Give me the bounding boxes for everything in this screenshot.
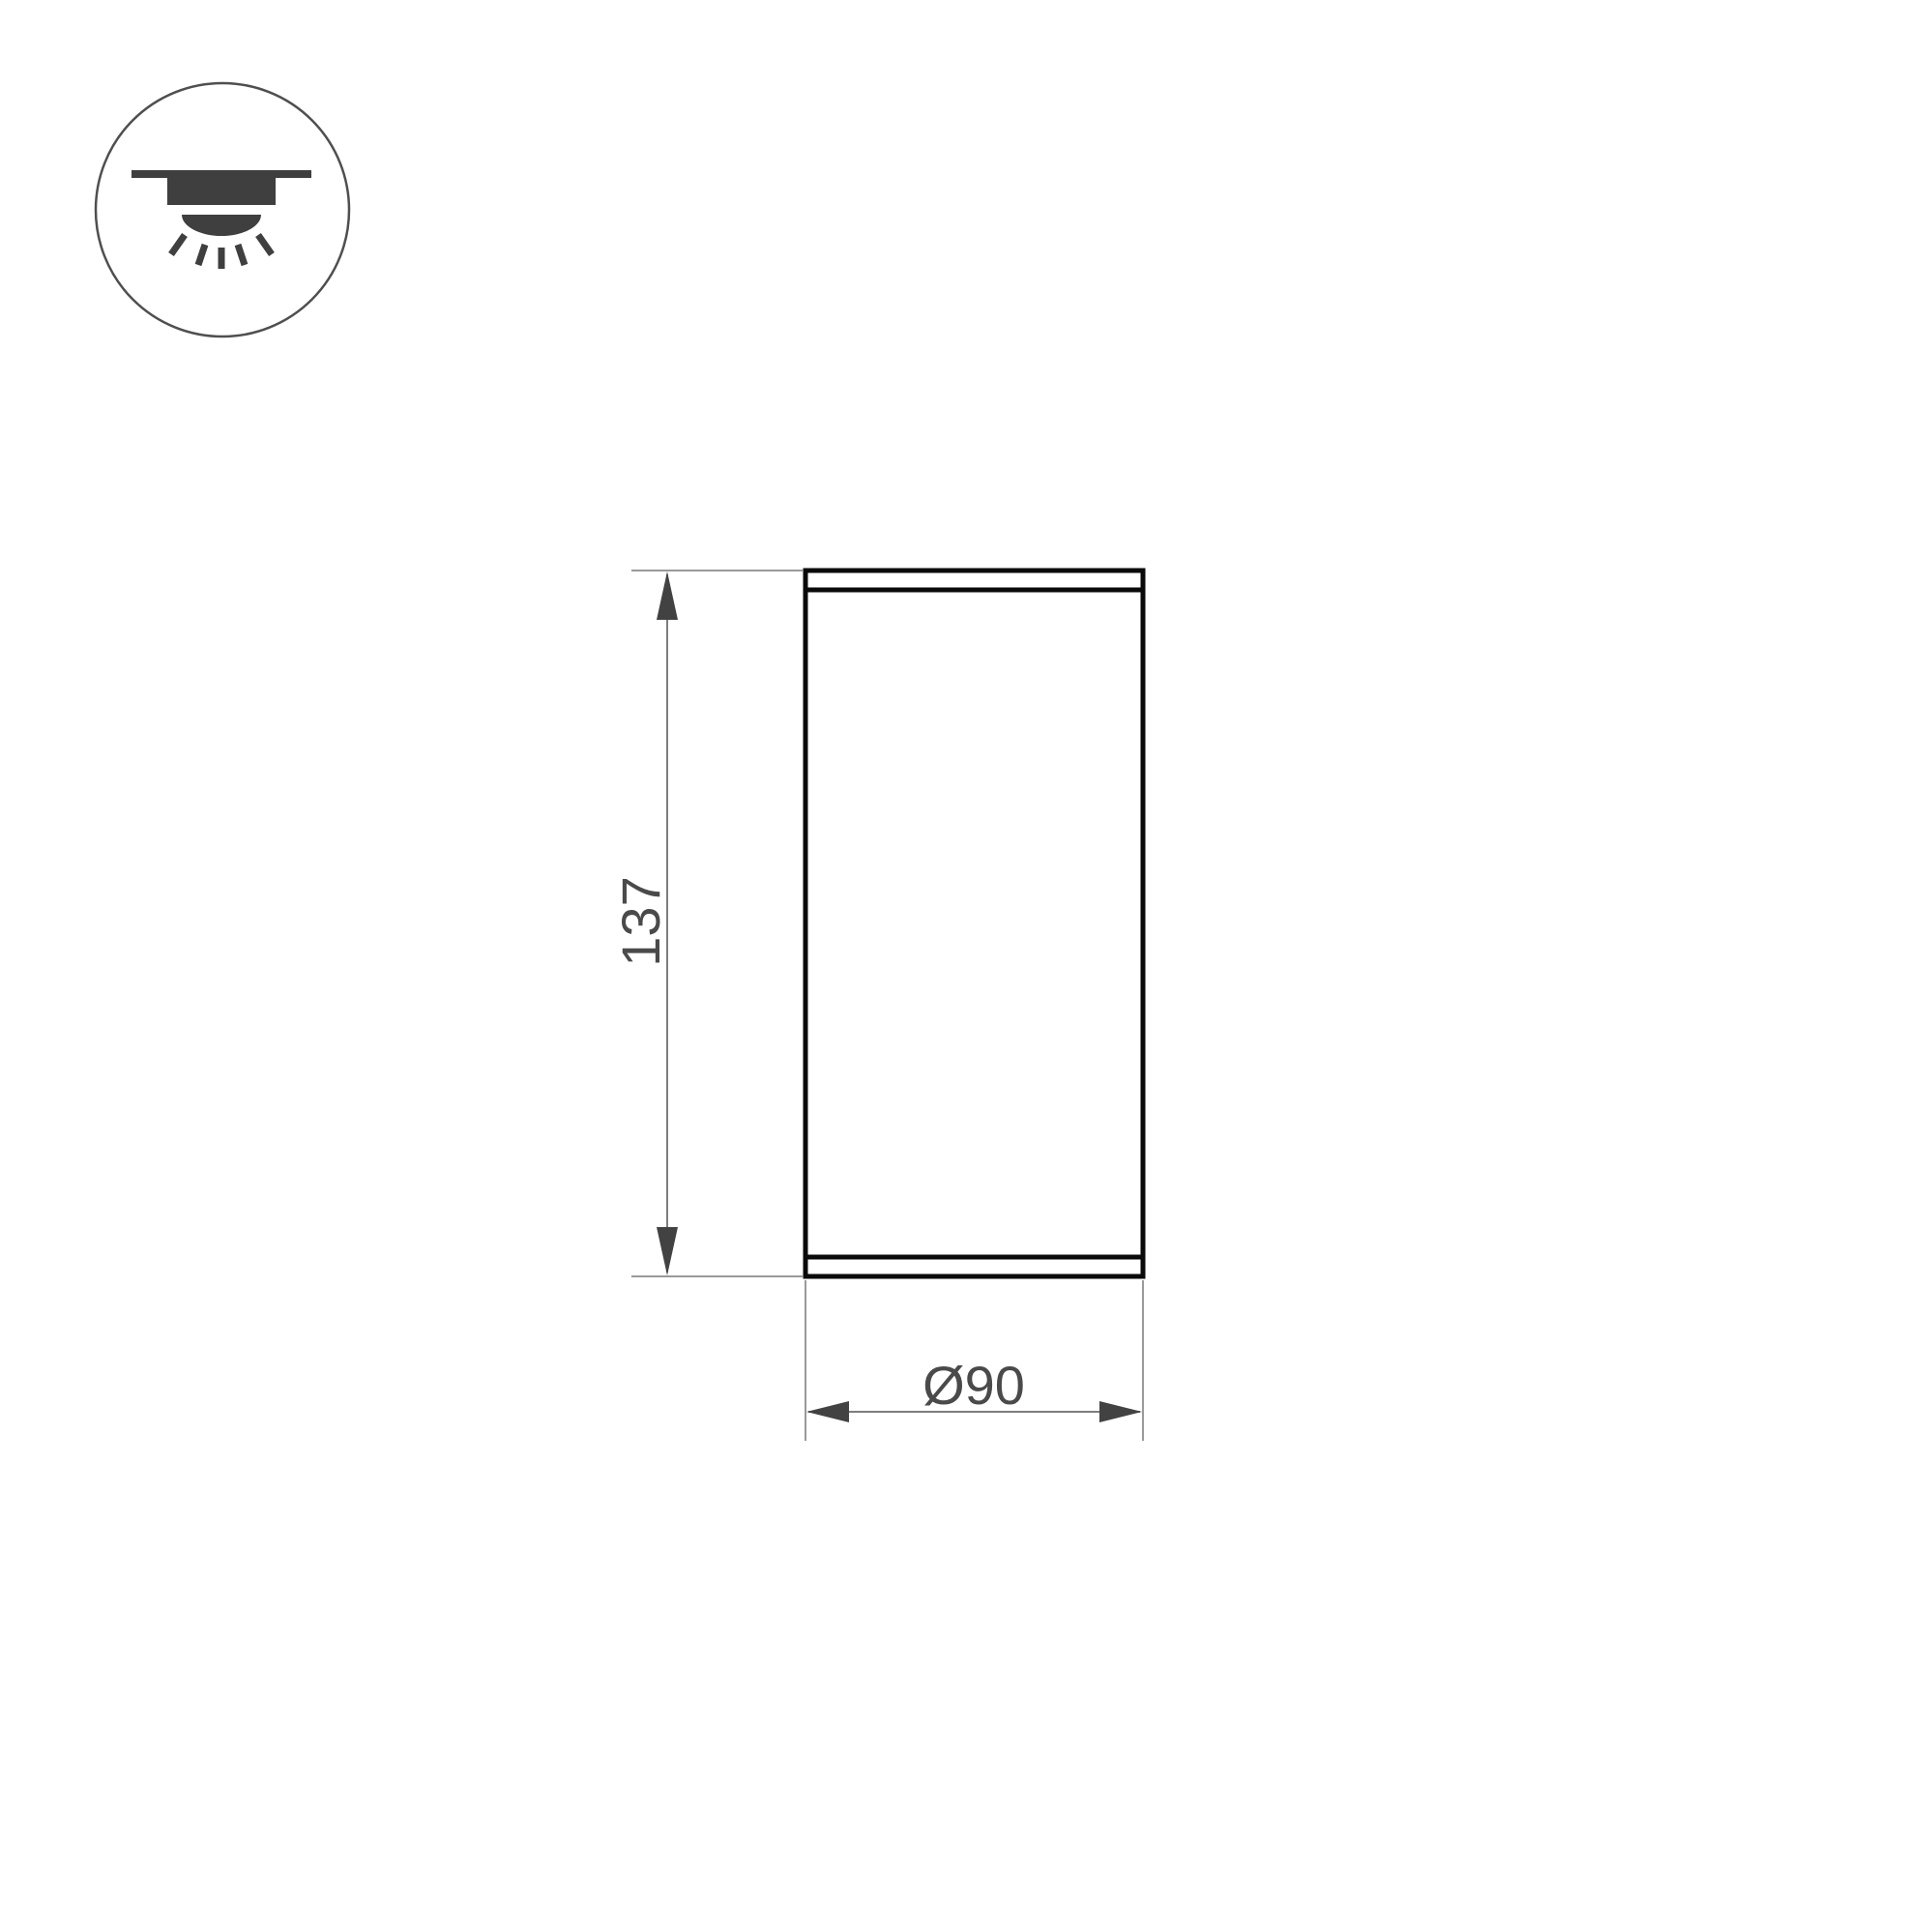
- drawing-canvas: 137 Ø90: [0, 0, 1932, 1932]
- recessed-housing-icon: [167, 170, 276, 205]
- light-rays-icon: [171, 235, 272, 269]
- body-outline: [805, 571, 1143, 1276]
- arrow-right-icon: [1099, 1401, 1142, 1422]
- technical-drawing: 137 Ø90: [0, 0, 1932, 1932]
- luminaire-body: [805, 571, 1143, 1276]
- mount-type-icon: [96, 83, 349, 337]
- height-dimension: 137: [610, 571, 803, 1276]
- arrow-up-icon: [657, 571, 678, 620]
- diameter-dimension-label: Ø90: [922, 1355, 1025, 1416]
- icon-circle: [96, 83, 349, 337]
- height-dimension-label: 137: [610, 876, 671, 966]
- light-ray-outer-left: [171, 235, 185, 254]
- arrow-left-icon: [806, 1401, 849, 1422]
- light-dome-icon: [182, 215, 261, 236]
- light-ray-outer-right: [258, 235, 272, 254]
- light-ray-inner-left: [198, 245, 205, 265]
- arrow-down-icon: [657, 1227, 678, 1275]
- light-ray-inner-right: [238, 245, 245, 265]
- diameter-dimension: Ø90: [805, 1280, 1143, 1441]
